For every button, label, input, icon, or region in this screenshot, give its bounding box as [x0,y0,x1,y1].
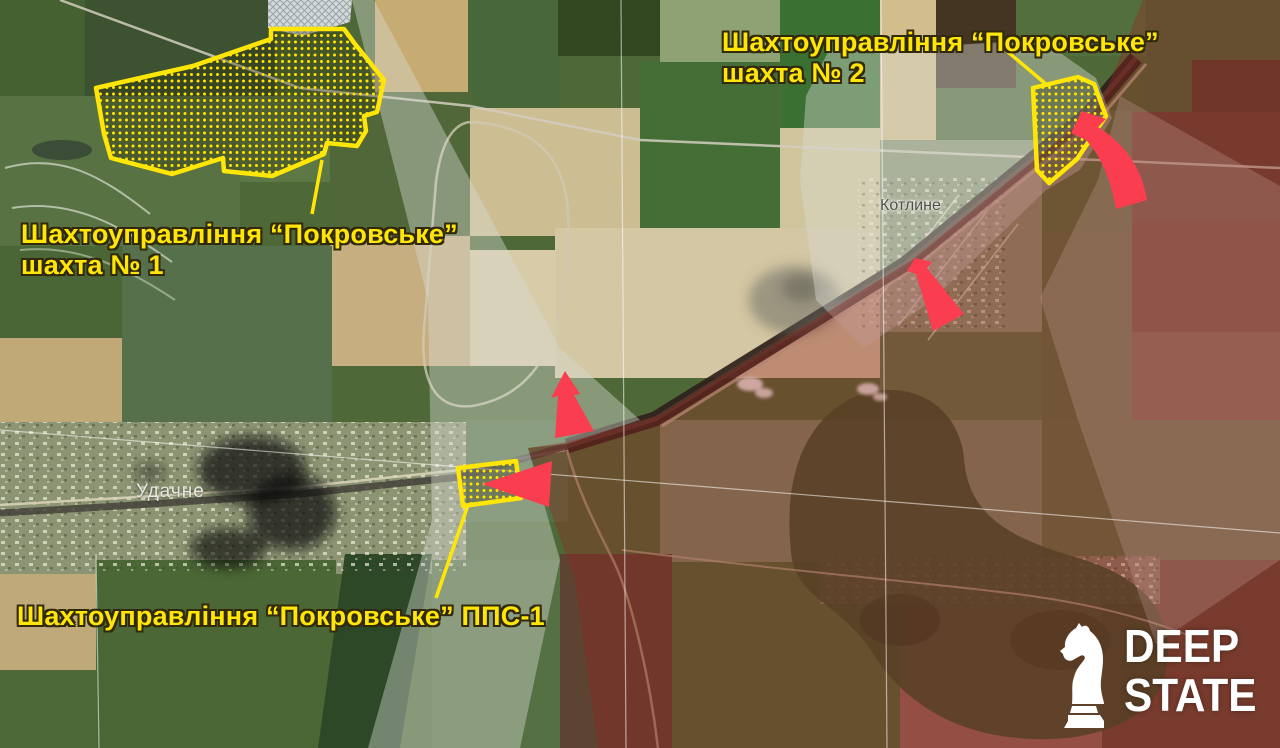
deepstate-logo-text: DEEP STATE [1124,622,1256,720]
deepstate-map-screenshot: Шахтоуправління “Покровське” шахта № 1 Ш… [0,0,1280,748]
village-label-udachne: Удачне [136,481,205,503]
pps1-label-line1: Шахтоуправління “Покровське” ППС-1 [17,601,545,632]
mine-1-label-line1: Шахтоуправління “Покровське” [21,219,458,250]
mine-2-label: Шахтоуправління “Покровське” шахта № 2 [722,27,1159,89]
mine-2-label-line1: Шахтоуправління “Покровське” [722,27,1159,58]
pps1-label: Шахтоуправління “Покровське” ППС-1 [17,601,545,632]
village-label-kotlyne: Котлине [880,197,941,215]
mine-1-label-line2: шахта № 1 [21,250,458,281]
mine-2-label-line2: шахта № 2 [722,58,1159,89]
chess-knight-icon [1056,623,1108,729]
logo-line2: STATE [1124,671,1256,720]
mine-1-label: Шахтоуправління “Покровське” шахта № 1 [21,219,458,281]
deepstate-logo: DEEP STATE [1054,621,1274,733]
logo-line1: DEEP [1124,622,1256,671]
